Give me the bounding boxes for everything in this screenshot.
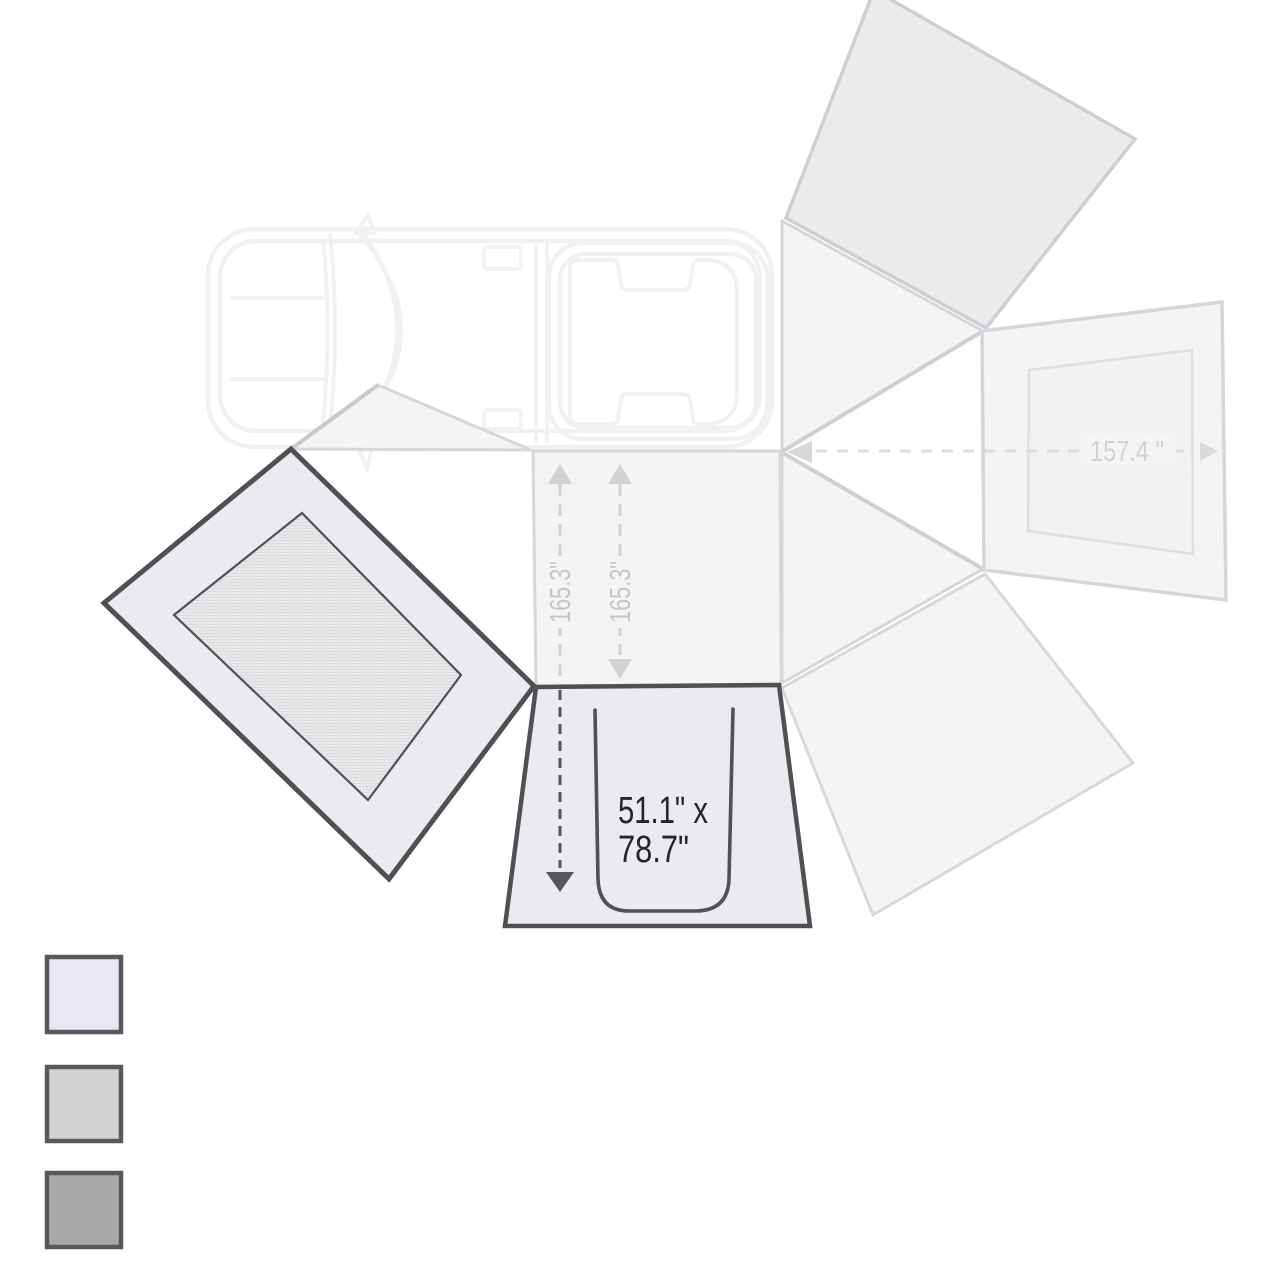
svg-text:165.3": 165.3": [545, 561, 577, 623]
svg-text:165.3": 165.3": [605, 561, 637, 623]
svg-text:78.7": 78.7": [618, 829, 689, 871]
svg-text:51.1" x: 51.1" x: [618, 790, 708, 832]
svg-text:157.4 ": 157.4 ": [1090, 436, 1164, 468]
